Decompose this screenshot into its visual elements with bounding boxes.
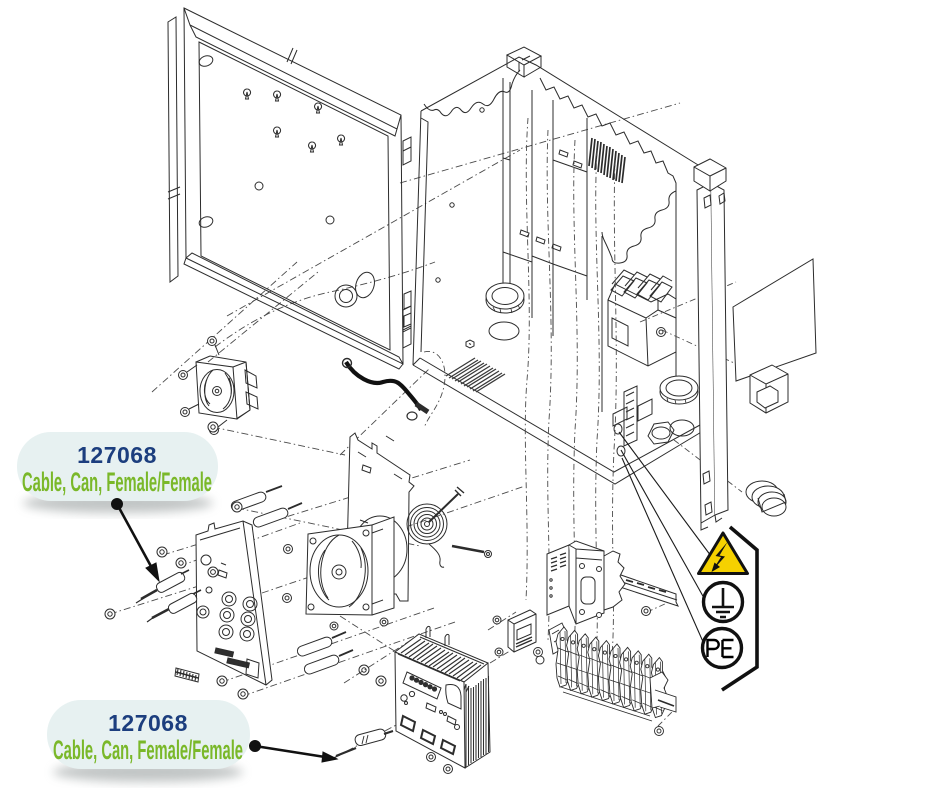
svg-text:127068: 127068: [108, 710, 188, 736]
svg-text:Cable, Can, Female/Female: Cable, Can, Female/Female: [53, 735, 243, 765]
svg-text:Cable, Can, Female/Female: Cable, Can, Female/Female: [22, 467, 212, 497]
svg-text:127068: 127068: [77, 442, 157, 468]
